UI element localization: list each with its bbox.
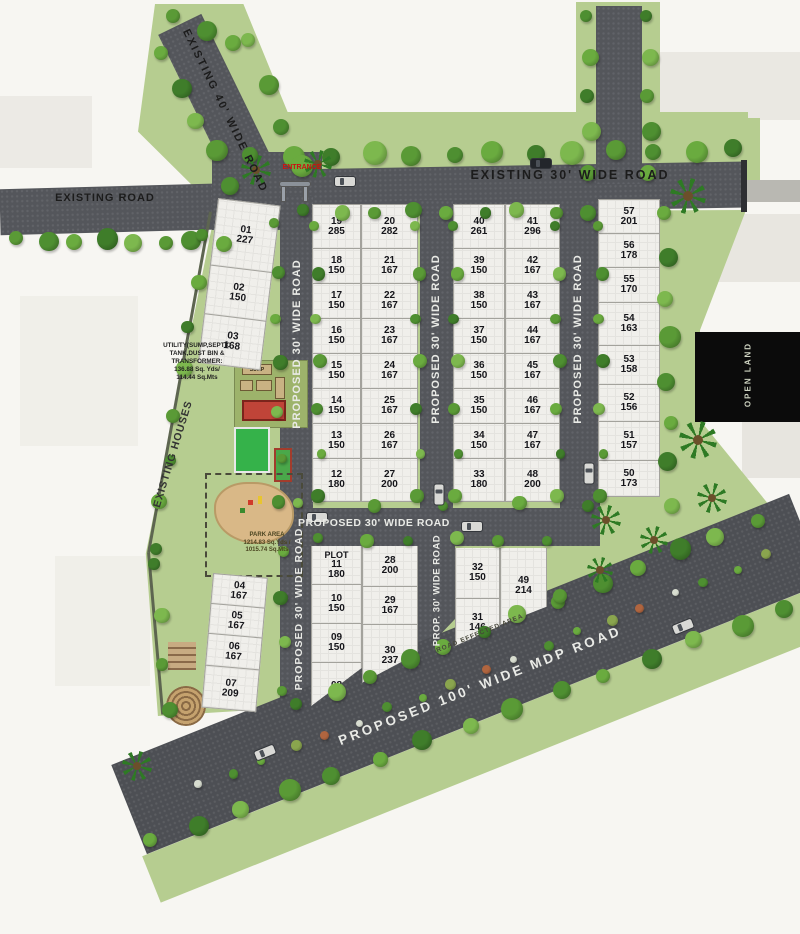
tree [596, 267, 609, 280]
tree [401, 146, 421, 166]
tree [328, 683, 346, 701]
tree [363, 141, 387, 165]
plot-52[interactable]: 52156 [598, 384, 660, 422]
tree [313, 533, 323, 543]
plot-42[interactable]: 42167 [505, 248, 560, 284]
tree [509, 202, 524, 217]
plot-29[interactable]: 29167 [362, 586, 418, 625]
road-stub [746, 180, 800, 202]
tree [416, 449, 426, 459]
tree [448, 489, 461, 502]
plot-17[interactable]: 17150 [312, 283, 361, 319]
proposed-30-road-label: PROPOSED 30' WIDE ROAD [572, 234, 584, 444]
tree [412, 730, 432, 750]
tree [159, 236, 173, 250]
tree [66, 234, 82, 250]
tree [492, 535, 504, 547]
tree [664, 498, 680, 514]
palm-tree [697, 483, 727, 513]
tree [593, 221, 603, 231]
plot-26[interactable]: 26167 [361, 423, 418, 459]
seating-grid [168, 642, 196, 670]
bush [573, 627, 581, 635]
entrance-gate-arch [279, 181, 311, 187]
tree [550, 207, 563, 220]
palm-tree [679, 421, 717, 459]
plot-22[interactable]: 22167 [361, 283, 418, 319]
bush [672, 589, 679, 596]
plot-38[interactable]: 38150 [453, 283, 505, 319]
tree [642, 649, 662, 669]
plot-50[interactable]: 50173 [598, 460, 660, 497]
tree [630, 560, 646, 576]
tree [606, 140, 626, 160]
tree [439, 206, 453, 220]
entrance-label: ENTRANCE [272, 164, 332, 171]
tree [309, 221, 319, 231]
tree [279, 779, 301, 801]
play-equipment [240, 508, 245, 513]
proposed-30-road-label: PROPOSED 30' WIDE ROAD [430, 234, 442, 444]
tree [657, 373, 675, 391]
tree [310, 314, 321, 325]
tree [642, 122, 661, 141]
park-area-note: PARK AREA 1214.83 Sq.Yds / 1015.74 Sq.Mt… [228, 532, 306, 555]
tree [335, 205, 350, 220]
tree [360, 534, 373, 547]
car [334, 176, 356, 187]
plot-11[interactable]: PLOT11180 [311, 545, 362, 585]
tree [368, 499, 381, 512]
tree [156, 658, 169, 671]
tree [259, 75, 279, 95]
tree [277, 686, 287, 696]
tree [206, 140, 228, 162]
tree [197, 21, 217, 41]
tree [582, 122, 601, 141]
plot-16[interactable]: 16150 [312, 318, 361, 354]
outside-patch [20, 296, 138, 446]
tree [685, 631, 701, 647]
bush [635, 604, 644, 613]
open-land-label: OPEN LAND [744, 330, 753, 420]
existing-road [0, 183, 247, 235]
palm-tree [670, 178, 706, 214]
site-plan-map: SUMP EXISTING ROAD EXISTING 40' WIDE ROA… [0, 0, 800, 934]
palm-tree [122, 751, 152, 781]
tree [556, 449, 566, 459]
palm-tree [591, 505, 621, 535]
plot-21[interactable]: 21167 [361, 248, 418, 284]
tree [670, 538, 692, 560]
utility-note: UTILITY(SUMP,SEPTIC TANK,DUST BIN & TRAN… [152, 342, 242, 382]
plot-23[interactable]: 23167 [361, 318, 418, 354]
tree [293, 498, 303, 508]
plot-54[interactable]: 54163 [598, 302, 660, 346]
tree [501, 698, 523, 720]
tree [225, 35, 241, 51]
bush [482, 665, 491, 674]
plot-block-c20: 2028221167221672316724167251672616727200 [361, 205, 418, 502]
existing-road-label: EXISTING ROAD [25, 192, 185, 204]
entrance-gate-pillar [303, 186, 308, 202]
plot-35[interactable]: 35150 [453, 388, 505, 424]
bush [510, 656, 517, 663]
car [434, 484, 445, 506]
outside-patch [55, 556, 150, 686]
entrance-gate-pillar [281, 186, 286, 202]
tree [154, 608, 169, 623]
tree [732, 615, 754, 637]
plot-block-c04: 04167051670616707209 [201, 574, 267, 712]
tree [311, 489, 324, 502]
tree [413, 267, 426, 280]
tree [196, 229, 207, 240]
plot-45[interactable]: 45167 [505, 353, 560, 389]
plot-24[interactable]: 24167 [361, 353, 418, 389]
tree [181, 321, 194, 334]
tree [410, 489, 423, 502]
tree [39, 232, 59, 252]
proposed-30-road-h-label: PROPOSED 30' WIDE ROAD [298, 517, 444, 529]
lawn-court [234, 427, 270, 473]
tree [191, 275, 206, 290]
plot-47[interactable]: 47167 [505, 423, 560, 459]
play-equipment [258, 496, 262, 504]
play-equipment [248, 500, 253, 505]
tree [148, 558, 159, 569]
tree [124, 234, 142, 252]
tree [368, 207, 381, 220]
tree [645, 144, 661, 160]
tree [481, 141, 503, 163]
tree [273, 355, 287, 369]
tree [317, 449, 327, 459]
tree [216, 236, 232, 252]
tree [599, 449, 609, 459]
outside-patch [742, 414, 800, 478]
tree [187, 113, 203, 129]
plot-09[interactable]: 09150 [311, 623, 362, 663]
tree [512, 496, 526, 510]
tree [454, 449, 464, 459]
plot-block-c41: 4129642167431674416745167461674716748200 [505, 205, 560, 502]
tree [277, 454, 287, 464]
tree [553, 681, 571, 699]
plot-32[interactable]: 32150 [455, 547, 500, 599]
tree [451, 267, 464, 280]
tree [9, 231, 23, 245]
car [584, 463, 595, 485]
tree [686, 141, 708, 163]
bush [194, 780, 201, 787]
dust-bin-box [275, 377, 285, 399]
tree [553, 267, 566, 280]
palm-tree [640, 526, 668, 554]
tree [279, 636, 291, 648]
plot-37[interactable]: 37150 [453, 318, 505, 354]
tree [550, 221, 560, 231]
tree [311, 403, 323, 415]
existing-30-road-label: EXISTING 30' WIDE ROAD [390, 168, 750, 182]
outside-patch [0, 96, 92, 168]
tree [232, 801, 248, 817]
outside-patch [648, 52, 800, 120]
tree [724, 139, 742, 157]
tree [657, 291, 673, 307]
tree [269, 218, 279, 228]
palm-tree [587, 557, 613, 583]
plot-56[interactable]: 56178 [598, 233, 660, 268]
tree [463, 718, 479, 734]
tree [312, 267, 325, 280]
tree [97, 228, 119, 250]
tree [363, 670, 377, 684]
tree [272, 495, 285, 508]
tree [297, 204, 308, 215]
tree [448, 221, 458, 231]
tree [593, 489, 606, 502]
prop-30-road-label: PROP. 30' WIDE ROAD [432, 516, 443, 666]
car [461, 521, 483, 532]
plot-10[interactable]: 10150 [311, 584, 362, 624]
tree [273, 591, 287, 605]
tree [480, 207, 491, 218]
tree [659, 326, 681, 348]
tree [582, 500, 594, 512]
plot-28[interactable]: 28200 [362, 545, 418, 587]
plot-07[interactable]: 07209 [201, 665, 260, 713]
plot-02[interactable]: 02150 [204, 265, 273, 322]
tree [401, 649, 420, 668]
tree [596, 669, 610, 683]
tree [775, 600, 793, 618]
dg-box [256, 380, 272, 391]
tree [542, 536, 552, 546]
plot-57[interactable]: 57201 [598, 199, 660, 234]
proposed-30-road-label: PROPOSED 30' WIDE ROAD [291, 239, 303, 449]
tree [550, 489, 563, 502]
tree [373, 752, 387, 766]
tree [410, 221, 420, 231]
tree [221, 177, 239, 195]
tree [706, 528, 724, 546]
plot-40[interactable]: 40261 [453, 204, 505, 249]
